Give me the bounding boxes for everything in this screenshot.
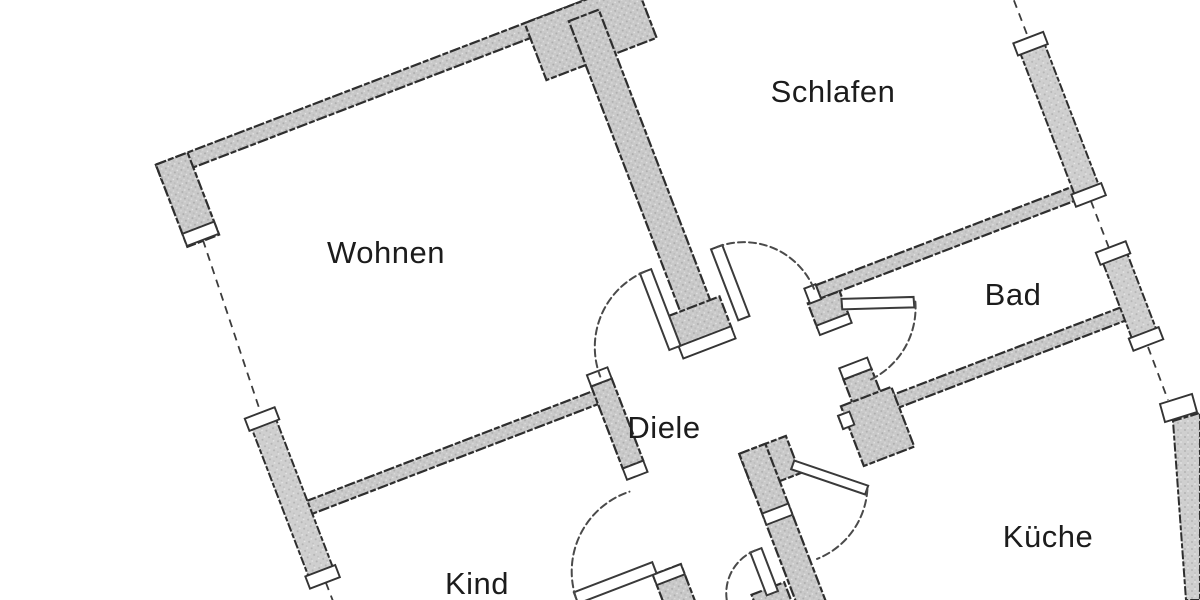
- kueche-door-arc: [800, 489, 884, 559]
- schlafen-window: [1019, 40, 1100, 198]
- exterior-top-wall: [156, 0, 815, 180]
- kueche-window-group: [1148, 347, 1200, 600]
- floor-plan-page: Wohnen Schlafen Bad Diele Kind Küche: [0, 0, 1200, 600]
- wohnen-schlafen-wall: [569, 10, 722, 342]
- room-label-kind: Kind: [445, 566, 509, 600]
- room-label-wohnen: Wohnen: [327, 235, 445, 270]
- kind-door-leaf: [574, 562, 657, 600]
- room-label-schlafen: Schlafen: [771, 74, 896, 109]
- kueche-window: [1173, 413, 1200, 600]
- room-label-diele: Diele: [627, 410, 700, 445]
- diele-south-door-leaf: [750, 548, 778, 595]
- bad-window: [1101, 250, 1157, 342]
- room-label-bad: Bad: [985, 277, 1042, 312]
- wohnen-kind-wall: [305, 387, 607, 514]
- schlafen-bad-wall: [816, 183, 1086, 298]
- floor-plan-canvas: Wohnen Schlafen Bad Diele Kind Küche: [0, 0, 1200, 600]
- room-label-kueche: Küche: [1003, 519, 1093, 554]
